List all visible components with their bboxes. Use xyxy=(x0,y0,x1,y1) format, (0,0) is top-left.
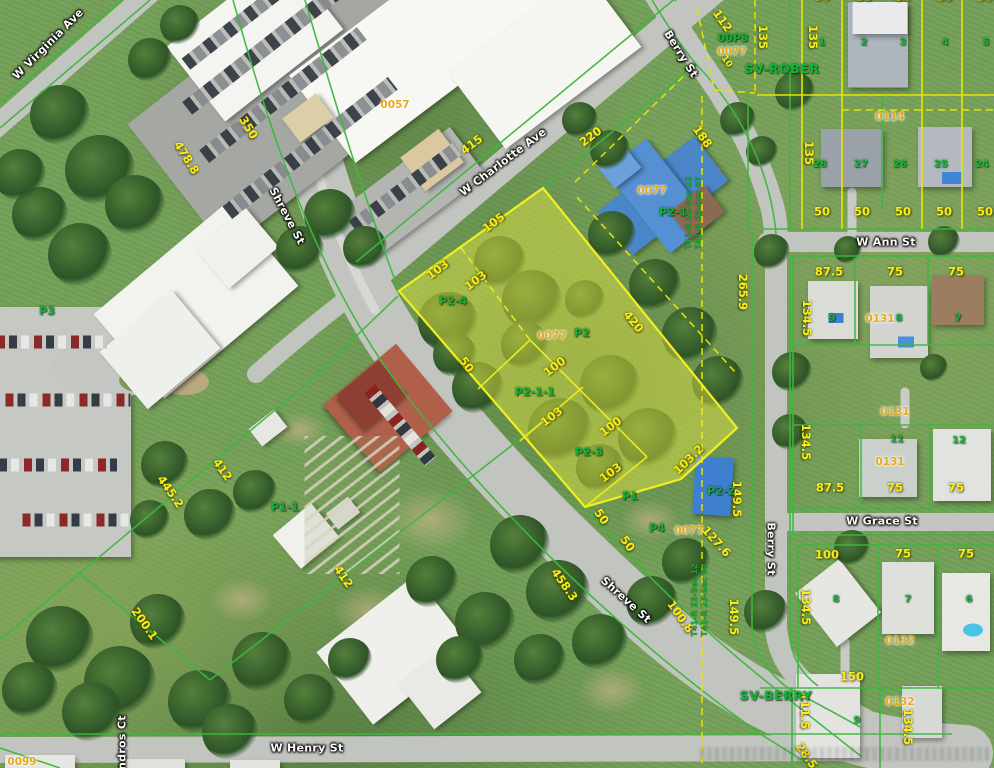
dimension-label: 134.5 xyxy=(800,300,812,336)
plat-code-label: 0114 xyxy=(875,112,904,123)
dimension-label: 135 xyxy=(756,25,768,49)
lot-number-label: 5 xyxy=(983,38,990,48)
section-township-label: T41-R 22-Sec 12 xyxy=(685,176,693,249)
dimension-label: 134.5 xyxy=(901,709,913,745)
dimension-label: 50 xyxy=(937,0,953,3)
parcel-id-label: P2-4 xyxy=(439,296,467,307)
lot-number-label: 24 xyxy=(975,160,989,170)
dimension-label: 134.5 xyxy=(799,589,811,625)
dimension-label: 50 xyxy=(936,206,952,218)
plat-code-label: 0077 xyxy=(674,526,703,537)
dimension-label: 135 xyxy=(806,25,818,49)
lot-number-label: 27 xyxy=(854,160,868,170)
plat-code-label: 0057 xyxy=(380,100,409,111)
dimension-label: 50 xyxy=(856,0,872,3)
plat-code-label: 0099 xyxy=(7,757,36,768)
dimension-label: 75 xyxy=(895,548,911,560)
section-township-label: T41-R 22-Sec 12 xyxy=(691,563,699,636)
plat-code-label: 0077 xyxy=(637,186,666,197)
lot-number-label: 3 xyxy=(900,38,907,48)
lot-number-label: 12 xyxy=(952,436,966,446)
parcel-id-label: P2-1-1 xyxy=(515,387,555,398)
plat-code-label: 0131 xyxy=(880,407,909,418)
lot-number-label: 8 xyxy=(896,314,903,324)
street-label: Andros Ct xyxy=(117,715,128,768)
parcel-id-label: P2 xyxy=(574,328,590,339)
dimension-label: 50 xyxy=(977,206,993,218)
lot-number-label: 9 xyxy=(854,716,861,726)
plat-code-label: 0131 xyxy=(865,314,894,325)
dimension-label: 87.5 xyxy=(815,266,843,278)
plat-code-label: 0132 xyxy=(885,636,914,647)
lot-number-label: 2 xyxy=(861,38,868,48)
dimension-label: 135 xyxy=(802,141,814,165)
lot-number-label: 28 xyxy=(813,160,827,170)
dimension-label: 50 xyxy=(814,206,830,218)
lot-number-label: 4 xyxy=(942,38,949,48)
dimension-label: 75 xyxy=(958,548,974,560)
section-township-label: T41-R 23-Sec 07 xyxy=(701,563,709,636)
street-label: W Ann St xyxy=(856,237,916,248)
lot-number-label: 9 xyxy=(829,314,836,324)
map-canvas[interactable]: W Virginia AveShreve StW Charlotte AveBe… xyxy=(0,0,994,768)
dimension-label: 50 xyxy=(895,206,911,218)
lot-number-label: 11 xyxy=(890,435,904,445)
dimension-label: 50 xyxy=(814,0,830,3)
dimension-label: 134.5 xyxy=(799,424,811,460)
parcel-id-label: P4 xyxy=(649,523,665,534)
parcel-id-label: P1 xyxy=(622,491,638,502)
dimension-label: 87.5 xyxy=(816,482,844,494)
parcel-lines-layer xyxy=(0,0,994,768)
parcel-id-label: P1-1 xyxy=(271,502,299,513)
dimension-label: 50 xyxy=(895,0,911,3)
plat-code-label: 0132 xyxy=(885,697,914,708)
parcel-id-label: P3 xyxy=(39,306,55,317)
plat-code-label: 0077 xyxy=(717,47,746,58)
dimension-label: 50 xyxy=(854,206,870,218)
lot-number-label: 7 xyxy=(955,314,962,324)
street-label: W Grace St xyxy=(846,516,918,527)
parcel-id-label: P2-1 xyxy=(659,207,687,218)
dimension-label: 265.9 xyxy=(736,274,748,310)
dimension-label: 75 xyxy=(887,266,903,278)
subdivision-label: SV-ROBER xyxy=(745,63,820,76)
street-label: Berry St xyxy=(766,522,777,575)
street-label: W Henry St xyxy=(270,743,343,754)
lot-number-label: 1 xyxy=(819,38,826,48)
parcel-id-label: P2-3 xyxy=(575,447,603,458)
subdivision-label: SV-BERRY xyxy=(740,690,813,703)
parcel-id-label: 00P3 xyxy=(717,33,748,44)
parcel-id-label: P2-2 xyxy=(707,486,735,497)
lot-number-label: 6 xyxy=(966,595,973,605)
dimension-label: 50 xyxy=(977,0,993,3)
lot-number-label: 25 xyxy=(934,160,948,170)
dimension-label: 100 xyxy=(815,549,839,561)
lot-number-label: 26 xyxy=(893,160,907,170)
dimension-label: 149.5 xyxy=(727,599,739,635)
plat-code-label: 0131 xyxy=(875,457,904,468)
dimension-label: 75 xyxy=(948,266,964,278)
dimension-label: 75 xyxy=(948,482,964,494)
plat-code-label: 0077 xyxy=(537,331,566,342)
watermark xyxy=(700,747,990,761)
lot-number-label: 8 xyxy=(833,595,840,605)
dimension-label: 75 xyxy=(887,482,903,494)
section-township-label: T41-R 23-Sec 07 xyxy=(695,176,703,249)
dimension-label: 150 xyxy=(840,671,864,683)
lot-number-label: 7 xyxy=(905,595,912,605)
